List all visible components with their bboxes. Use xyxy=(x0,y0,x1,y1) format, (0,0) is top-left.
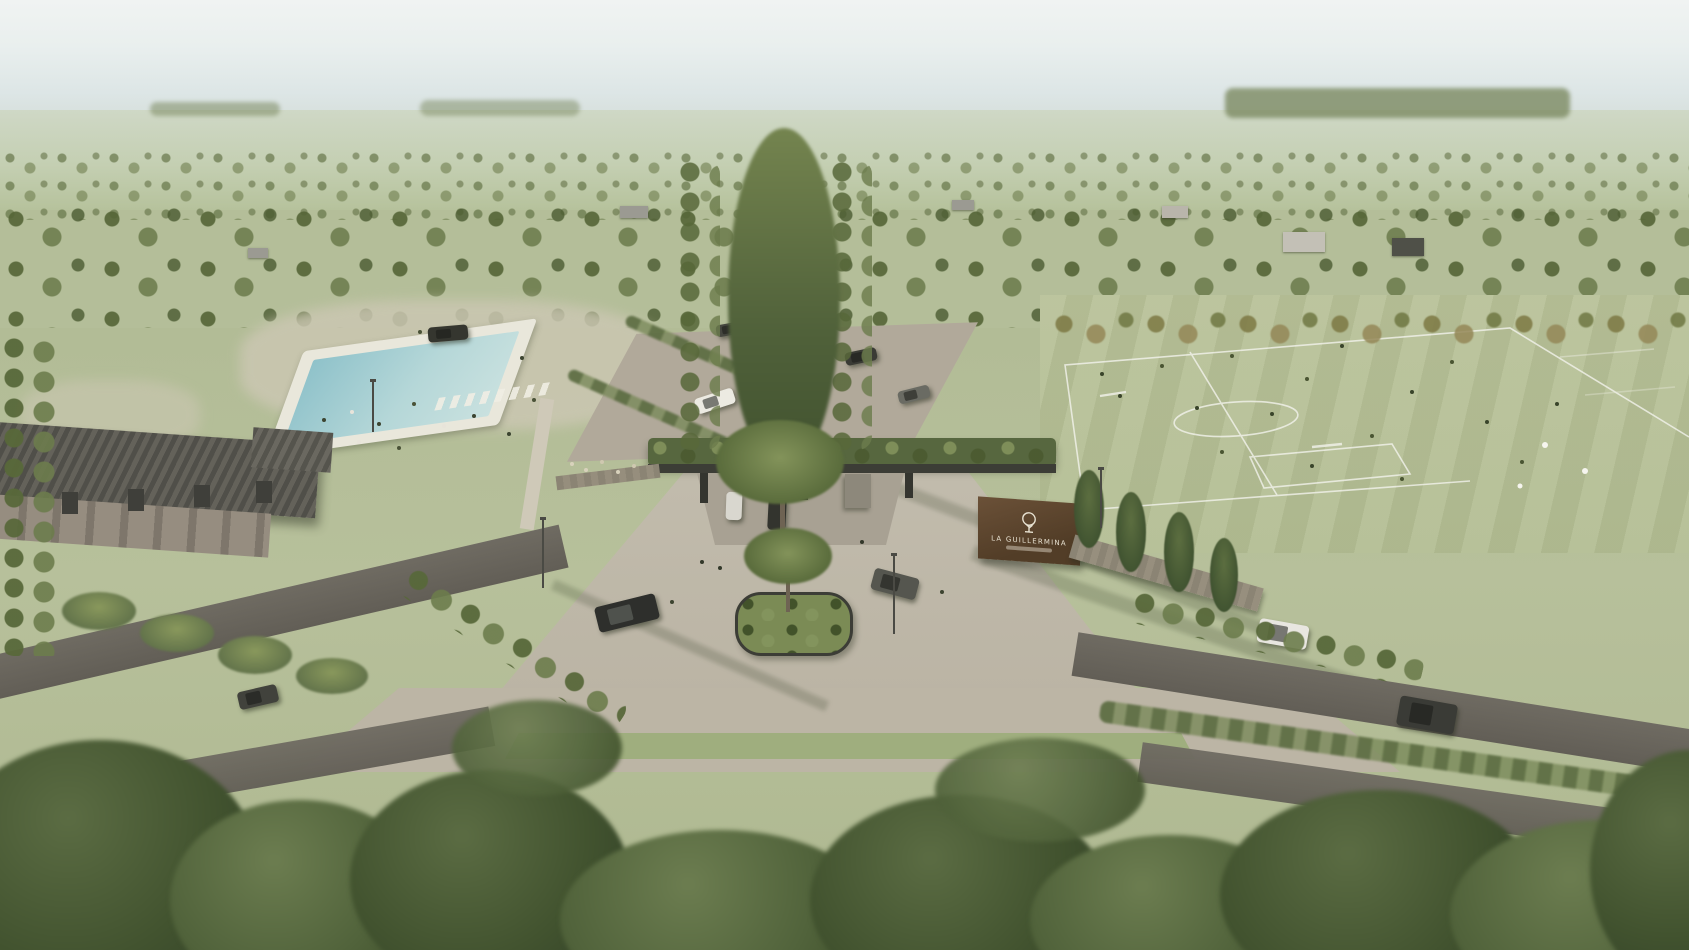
light-pole xyxy=(1100,470,1102,528)
pampas-grass xyxy=(570,462,574,466)
roadside-palm xyxy=(218,636,292,674)
gate-palm xyxy=(716,420,844,504)
cypress-tree xyxy=(1116,492,1146,572)
autumn-tree-row xyxy=(1052,312,1689,350)
avenue-tree-row-left xyxy=(676,160,720,450)
roadside-palm xyxy=(296,658,368,694)
cypress-tree xyxy=(1210,538,1238,612)
soccer-players xyxy=(1100,372,1104,376)
car-exiting-gate xyxy=(726,492,743,521)
distant-treeline-center xyxy=(420,100,580,116)
roadside-palm xyxy=(140,614,214,652)
chimney xyxy=(256,481,272,503)
distant-house xyxy=(248,248,268,258)
distant-treeline-left xyxy=(150,102,280,116)
mid-shrub xyxy=(452,700,622,796)
roadside-palm xyxy=(62,592,136,630)
chimney xyxy=(194,485,210,507)
mid-shrub xyxy=(935,738,1145,842)
gate-post xyxy=(700,473,708,503)
clubhouse-porch xyxy=(251,427,334,472)
plaza-pedestrians xyxy=(700,560,704,564)
house-dark-roof xyxy=(1392,238,1424,256)
light-pole xyxy=(542,520,544,588)
gate-post xyxy=(905,473,913,498)
distant-house xyxy=(952,200,974,210)
house-light-roof xyxy=(1283,232,1325,252)
left-boundary-trees xyxy=(0,336,66,656)
sign-title: LA GUILLERMINA xyxy=(991,534,1067,547)
chimney xyxy=(128,489,144,511)
aerial-render-scene: LA GUILLERMINA xyxy=(0,0,1689,950)
pool-people xyxy=(322,418,326,422)
distant-treeline-right xyxy=(1225,88,1570,118)
sign-subtitle-line xyxy=(1006,545,1052,552)
island-palm xyxy=(744,528,832,584)
gate-fascia xyxy=(648,464,1056,473)
tree-icon xyxy=(1016,510,1042,536)
distant-house xyxy=(1162,206,1188,218)
light-pole xyxy=(372,382,374,432)
guard-booth xyxy=(845,474,871,508)
cypress-tree xyxy=(1164,512,1194,592)
central-tall-tree xyxy=(728,128,840,470)
palm-roundabout-island xyxy=(735,592,853,656)
light-pole xyxy=(893,556,895,634)
entrance-sign: LA GUILLERMINA xyxy=(978,496,1080,565)
distant-house xyxy=(620,206,648,218)
